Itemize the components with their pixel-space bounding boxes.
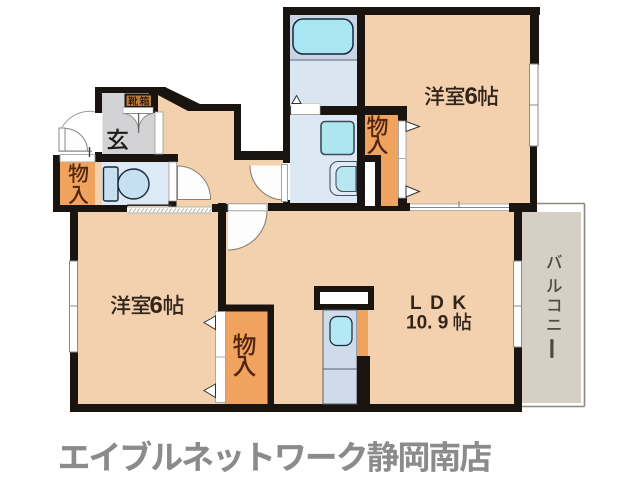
svg-text:6: 6 <box>465 83 478 110</box>
svg-text:6: 6 <box>150 292 163 319</box>
svg-text:10. 9: 10. 9 <box>406 313 448 334</box>
svg-text:LDK: LDK <box>410 293 475 314</box>
